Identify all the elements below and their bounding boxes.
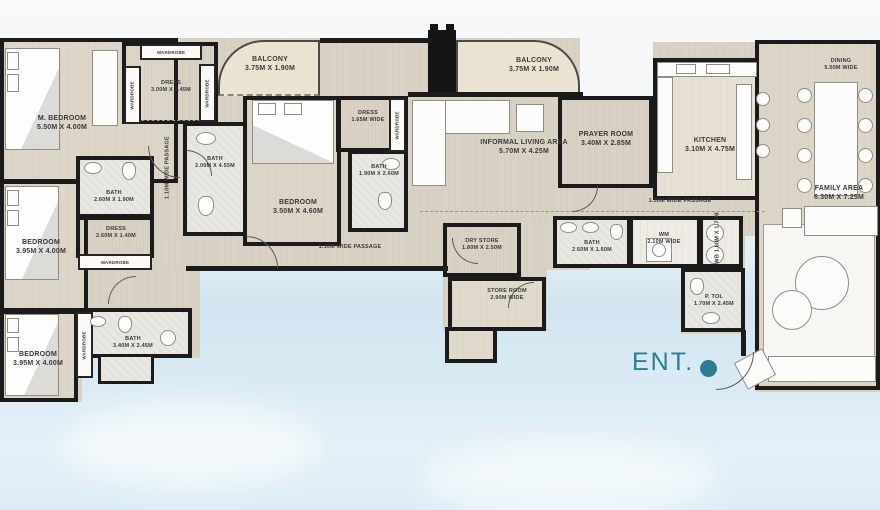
label-bath-4: BATH1.90M X 2.60M — [352, 164, 406, 178]
sofa — [804, 206, 878, 236]
pillow — [7, 318, 19, 333]
label-bedroom-2: BEDROOM3.95M X 4.00M — [0, 238, 82, 256]
washbasin — [582, 222, 599, 233]
side-table — [516, 104, 544, 132]
label-prayer-room: PRAYER ROOM3.40M X 2.85M — [568, 130, 644, 148]
shaft-notch — [430, 24, 438, 36]
watercolor-cloud — [60, 400, 320, 490]
label-dry-store: DRY STORE1.80M X 2.50M — [448, 238, 516, 252]
chair — [797, 88, 812, 103]
washbasin — [560, 222, 577, 233]
sink — [676, 64, 696, 74]
entrance-dot-icon — [700, 360, 717, 377]
watercolor-cloud — [420, 440, 720, 510]
dining-table — [814, 82, 858, 196]
label-balcony-left: BALCONY3.75M X 1.90M — [228, 55, 312, 73]
label-dress-master: DRESS3.00M X 2.45M — [138, 80, 204, 94]
wardrobe: WARDROBE — [124, 66, 141, 124]
toilet — [610, 224, 623, 240]
structural-shaft — [428, 30, 456, 94]
pillow — [7, 190, 19, 206]
stool — [756, 92, 770, 106]
label-bath-2: BATH2.60M X 1.90M — [82, 190, 146, 204]
label-wm: WM2.10M WIDE — [640, 232, 688, 246]
label-bedroom-4: BEDROOM3.50M X 4.60M — [262, 198, 334, 216]
label-dress-4: DRESS1.65M WIDE — [338, 110, 398, 124]
label-balcony-center: BALCONY3.75M X 1.90M — [486, 56, 582, 74]
kitchen-counter — [657, 77, 673, 173]
label-store-room: STORE ROOM2.90M WIDE — [472, 288, 542, 302]
toilet — [118, 316, 132, 333]
label-p-tol: P. TOL1.70M X 2.45M — [686, 294, 742, 308]
wall-top-center — [320, 38, 432, 43]
washbasin — [84, 162, 102, 174]
coffee-table — [772, 290, 812, 330]
stool — [756, 144, 770, 158]
label-passage-3: 1.30M WIDE PASSAGE — [624, 198, 736, 205]
label-bath-master: BATH2.00M X 4.55M — [186, 156, 244, 170]
washbasin — [196, 132, 216, 145]
stool — [756, 118, 770, 132]
pillow — [284, 103, 302, 115]
pillow — [7, 210, 19, 226]
entrance-label: ENT. — [632, 348, 694, 377]
chair — [797, 148, 812, 163]
side-table — [782, 208, 802, 228]
pillow — [7, 52, 19, 70]
label-bedroom-3: BEDROOM3.95M X 4.00M — [0, 350, 76, 368]
wardrobe: WARDROBE — [140, 44, 202, 60]
chair — [858, 88, 873, 103]
floor-plan: WARDROBE WARDROBE WARDROBE WARDROBE WARD… — [0, 0, 880, 510]
label-passage-2: 1.10M WIDE PASSAGE — [294, 244, 406, 251]
label-dining: DINING5.50M WIDE — [810, 58, 872, 72]
pillow — [258, 103, 276, 115]
washbasin — [90, 316, 106, 327]
label-family-area: FAMILY AREA6.30M X 7.25M — [798, 184, 880, 202]
wardrobe: WARDROBE — [389, 98, 406, 152]
washbasin — [702, 312, 720, 324]
dashed-passage-line — [420, 211, 765, 212]
chair — [858, 148, 873, 163]
sofa — [412, 100, 446, 186]
label-bath-5: BATH2.60M X 1.60M — [560, 240, 624, 254]
chair — [797, 118, 812, 133]
breakfast-bar — [736, 84, 752, 180]
toilet — [690, 278, 704, 295]
room-store-step — [445, 327, 497, 363]
wall-living-top — [408, 92, 583, 97]
toilet — [378, 192, 392, 210]
label-kitchen: KITCHEN3.10M X 4.75M — [678, 136, 742, 154]
sofa — [768, 356, 876, 382]
label-bath-3: BATH3.40M X 2.45M — [100, 336, 166, 350]
label-dress-2: DRESS2.60M X 1.40M — [88, 226, 144, 240]
toilet — [122, 162, 136, 180]
chair — [858, 118, 873, 133]
room-shower — [98, 354, 154, 384]
label-passage-1: 1.10M WIDE PASSAGE — [164, 108, 171, 228]
stove — [706, 64, 730, 74]
label-wb: WB 1.60M X 1.70M — [714, 216, 721, 264]
shaft-notch — [446, 24, 454, 36]
toilet — [198, 196, 214, 216]
label-m-bedroom: M. BEDROOM5.50M X 4.00M — [8, 114, 116, 132]
wall-passage-bottom — [186, 266, 448, 271]
wardrobe: WARDROBE — [78, 254, 152, 270]
pillow — [7, 74, 19, 92]
